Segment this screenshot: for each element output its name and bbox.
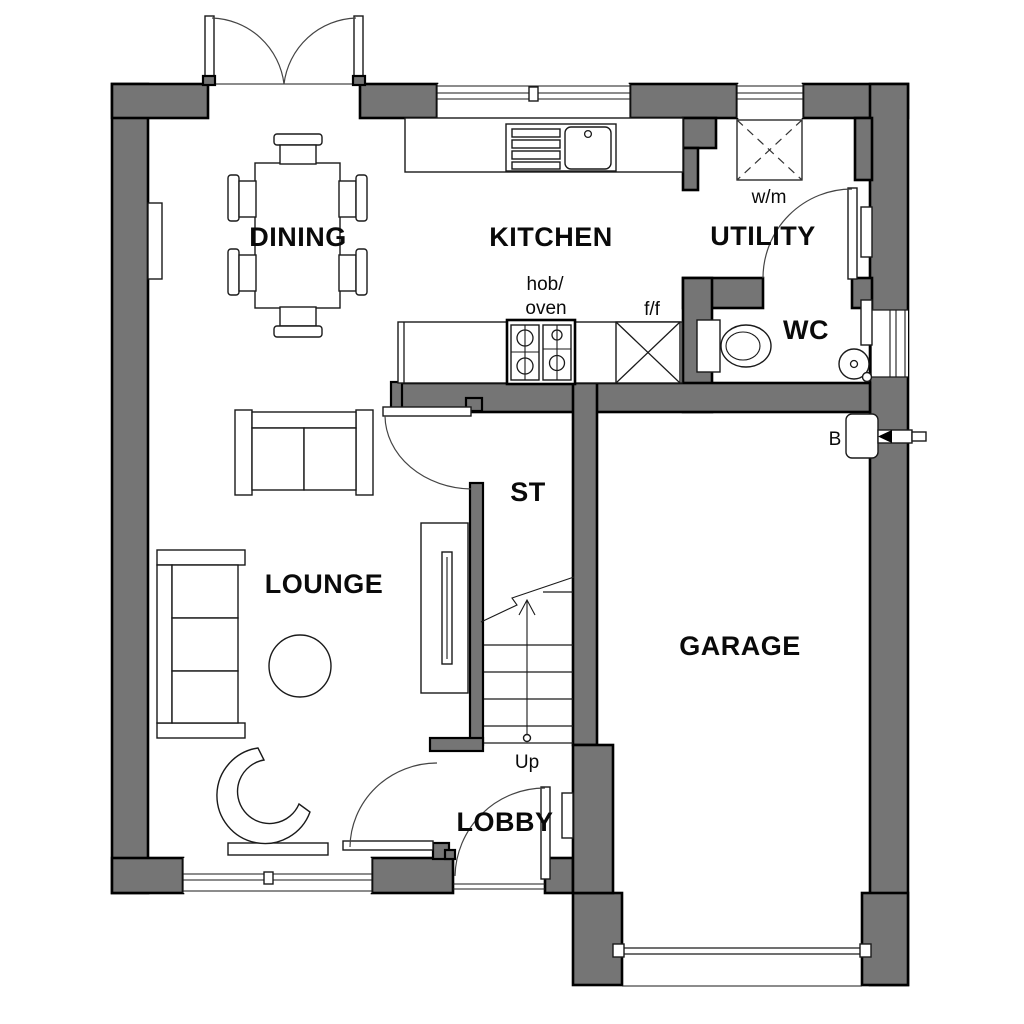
dining-chair-left-2 [228, 249, 256, 295]
stair-start-dot [524, 735, 531, 742]
room-label-st: ST [510, 477, 546, 507]
room-label-lounge: LOUNGE [265, 569, 384, 599]
stairs [481, 577, 574, 743]
dining-radiator [148, 203, 162, 279]
coffee-table [269, 635, 331, 697]
front-door-jamb-nub [445, 850, 455, 859]
wc-radiator [861, 300, 872, 345]
lounge-window-recess [183, 858, 372, 893]
wall-kitchen-utility-b [683, 148, 698, 190]
wall-stair-partition [470, 483, 483, 745]
garage-door-jamb-left [613, 944, 624, 957]
sink-drainer-bar [512, 162, 560, 169]
wall-stair-stub [430, 738, 483, 751]
boiler-box [846, 414, 878, 458]
dining-chair-top [274, 134, 322, 164]
toilet-cistern [697, 320, 720, 372]
lobby-radiator [562, 793, 573, 838]
label-washing-machine: w/m [751, 187, 787, 208]
wall-garage-front-right [862, 893, 908, 985]
room-label-wc: WC [783, 315, 829, 345]
sofa2-arm-left [235, 410, 252, 495]
front-door-threshold [453, 884, 545, 889]
utility-window [737, 84, 803, 118]
wc-basin [839, 349, 872, 382]
french-door-left-leaf [205, 16, 214, 84]
label-hob-line1: hob/ [527, 274, 565, 295]
sofa3-back [157, 565, 172, 723]
wall-top-b [360, 84, 437, 118]
room-label-garage: GARAGE [679, 631, 801, 661]
kitchen-window [437, 84, 630, 118]
basin-tap [863, 373, 872, 382]
sofa3-seat [172, 565, 238, 618]
sofa3-arm-top [157, 550, 245, 565]
sofa3-arm-bottom [157, 723, 245, 738]
kitchen-window-mullion [529, 87, 538, 101]
lounge-window-mullion [264, 872, 273, 884]
sofa2-seat [252, 428, 304, 490]
room-label-utility: UTILITY [710, 221, 816, 251]
label-boiler: B [829, 429, 842, 450]
sofa2-seat [304, 428, 356, 490]
wall-top-c [630, 84, 737, 118]
wall-garage-left-lower [573, 745, 613, 893]
sofa3-seat [172, 618, 238, 671]
floor-plan-drawing: DINING KITCHEN UTILITY WC ST LOUNGE GARA… [0, 0, 1024, 1024]
dining-chair-right-1 [339, 175, 367, 221]
garage-door [613, 944, 871, 986]
toilet-bowl [721, 325, 771, 367]
sofa-two-seat [235, 410, 373, 495]
room-label-dining: DINING [249, 222, 347, 252]
lounge-window-sill-board [228, 843, 328, 855]
wc-window [872, 310, 908, 377]
annotation-labels: w/m hob/ oven f/f Up B [515, 187, 841, 773]
french-door-hinge-right [353, 76, 365, 85]
room-label-kitchen: KITCHEN [489, 222, 613, 252]
sink-drainer-bar [512, 129, 560, 137]
sofa-three-seat [157, 550, 245, 738]
lounge-lobby-door-leaf [343, 841, 433, 850]
dining-chair-right-2 [339, 249, 367, 295]
curved-chair [217, 748, 310, 843]
dining-french-doors [203, 16, 365, 85]
lounge-lobby-door [343, 763, 437, 850]
st-door [383, 407, 471, 489]
label-fridge-freezer: f/f [644, 299, 661, 320]
wall-right-jog [855, 118, 872, 180]
sink-bowl [565, 127, 611, 169]
french-door-right-leaf [354, 16, 363, 84]
wall-garage-front-left [573, 893, 622, 985]
utility-window-recess [737, 84, 803, 118]
st-door-leaf [383, 407, 471, 416]
wall-right [870, 84, 908, 985]
wc-door-leaf [848, 188, 857, 279]
wall-front-b [372, 858, 453, 893]
garage-door-jamb-right [860, 944, 871, 957]
sofa2-arm-right [356, 410, 373, 495]
wall-left [112, 84, 148, 893]
dining-chair-bottom [274, 307, 322, 337]
fridge-freezer [616, 322, 680, 383]
kitchen-sink [506, 124, 616, 171]
wall-top-a [112, 84, 208, 118]
hob-oven [507, 320, 575, 384]
media-unit [421, 523, 468, 693]
utility-radiator [861, 207, 872, 257]
washing-machine [737, 120, 802, 180]
label-hob-line2: oven [525, 298, 566, 319]
room-label-lobby: LOBBY [457, 807, 554, 837]
french-door-hinge-left [203, 76, 215, 85]
boiler-flue-tip [912, 432, 926, 441]
lobby-fixtures [562, 793, 573, 838]
label-stairs-up: Up [515, 752, 539, 773]
sofa3-seat [172, 671, 238, 723]
wall-front-a [112, 858, 183, 893]
floor-plan-page: DINING KITCHEN UTILITY WC ST LOUNGE GARA… [0, 0, 1024, 1024]
wall-garage-left-upper [573, 383, 597, 745]
dining-chair-left-1 [228, 175, 256, 221]
sink-drainer-bar [512, 151, 560, 159]
wall-kitchen-utility-a [683, 118, 716, 148]
sink-drainer-bar [512, 140, 560, 148]
toilet [697, 320, 771, 372]
sofa2-back [252, 412, 356, 428]
